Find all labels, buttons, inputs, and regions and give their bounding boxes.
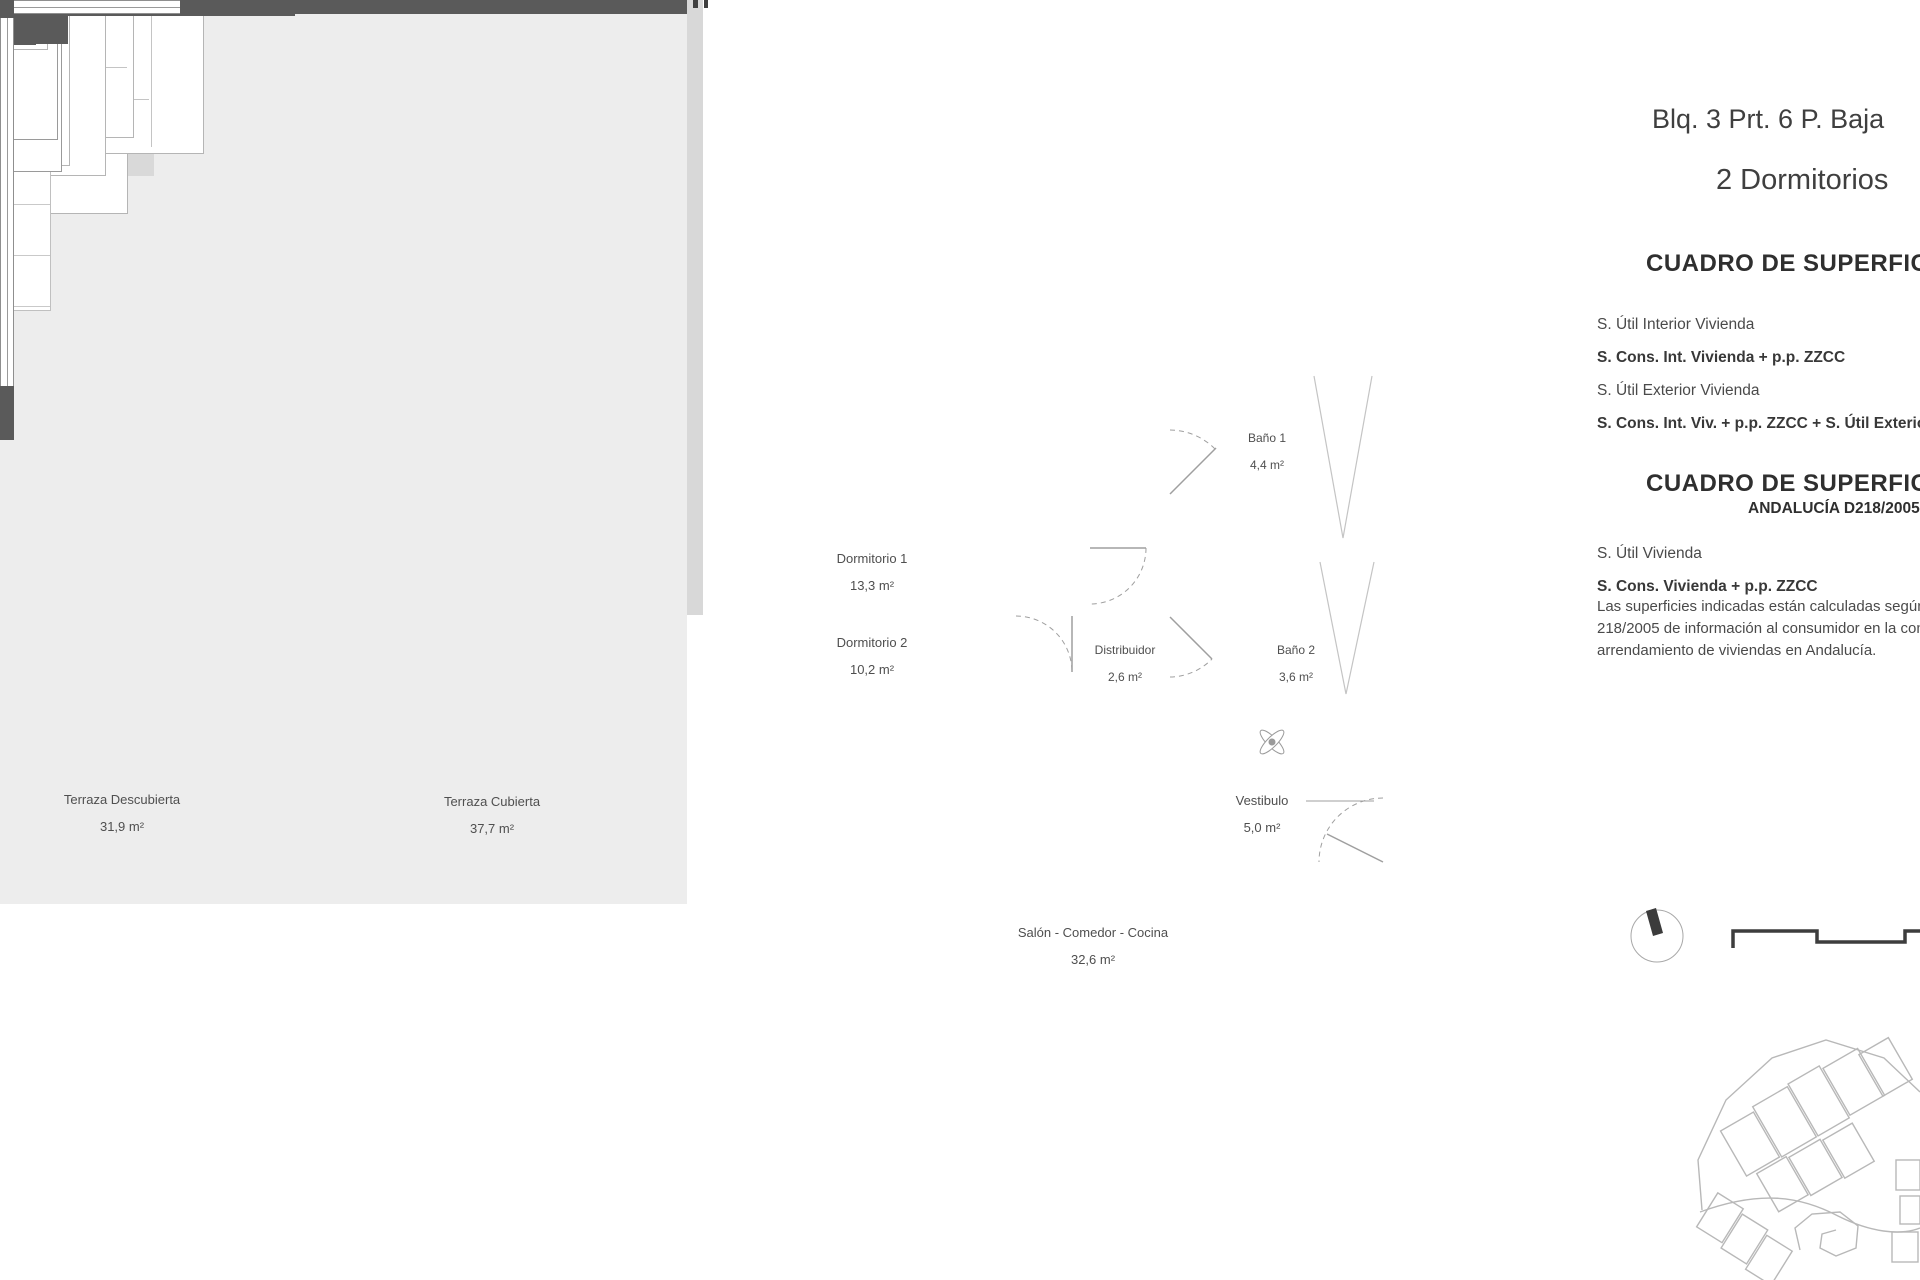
surface-table2-row: S. Cons. Vivienda + p.p. ZZCC [1597,578,1818,596]
plan-title: Blq. 3 Prt. 6 P. Baja [1652,104,1884,135]
room-area: 13,3 m² [837,572,908,599]
room-area: 32,6 m² [1018,946,1168,973]
floor-plan-sheet: Dormitorio 1 13,3 m² Dormitorio 2 10,2 m… [0,0,1920,1280]
room-name: Dormitorio 1 [837,545,908,572]
room-area: 2,6 m² [1095,664,1156,691]
surface-table1-row: S. Cons. Int. Viv. + p.p. ZZCC + S. Útil… [1597,415,1920,433]
room-label-bano1: Baño 1 4,4 m² [1248,425,1286,479]
room-area: 31,9 m² [64,813,180,840]
legal-note-line: arrendamiento de viviendas en Andalucía. [1597,642,1876,659]
room-area: 4,4 m² [1248,452,1286,479]
door-entrance [1306,798,1383,862]
room-name: Vestibulo [1236,787,1289,814]
door-bathroom1 [1170,430,1216,494]
room-area: 10,2 m² [837,656,908,683]
site-plan-map [1691,1029,1920,1280]
door-bathroom2 [1170,617,1212,677]
room-label-dormitorio2: Dormitorio 2 10,2 m² [837,629,908,683]
surface-table1-row: S. Útil Interior Vivienda [1597,316,1754,334]
room-label-vestibulo: Vestibulo 5,0 m² [1236,787,1289,841]
plan-overlay [0,0,1920,1280]
room-name: Terraza Cubierta [444,788,540,815]
surface-table1-heading: CUADRO DE SUPERFICIES [1646,250,1920,278]
room-name: Salón - Comedor - Cocina [1018,919,1168,946]
door-dormitorio2 [1016,616,1072,672]
extractor-fan-icon [1257,727,1287,757]
surface-table2-heading: CUADRO DE SUPERFICIES [1646,470,1920,498]
room-name: Distribuidor [1095,637,1156,664]
legal-note-line: Las superficies indicadas están calculad… [1597,598,1920,615]
room-name: Baño 1 [1248,425,1286,452]
room-name: Dormitorio 2 [837,629,908,656]
north-arrow-icon [1631,908,1683,962]
surface-table2-subheading: ANDALUCÍA D218/2005 [1748,500,1920,518]
surface-table1-row: S. Útil Exterior Vivienda [1597,382,1760,400]
room-name: Baño 2 [1277,637,1315,664]
room-area: 37,7 m² [444,815,540,842]
room-area: 3,6 m² [1277,664,1315,691]
shower-glass-marks [1314,376,1374,694]
room-label-distribuidor: Distribuidor 2,6 m² [1095,637,1156,691]
legal-note-line: 218/2005 de información al consumidor en… [1597,620,1920,637]
room-name: Terraza Descubierta [64,786,180,813]
plan-subtitle: 2 Dormitorios [1716,164,1888,197]
surface-table1-row: S. Cons. Int. Vivienda + p.p. ZZCC [1597,349,1845,367]
room-label-salon: Salón - Comedor - Cocina 32,6 m² [1018,919,1168,973]
surface-table2-row: S. Útil Vivienda [1597,545,1702,563]
room-area: 5,0 m² [1236,814,1289,841]
scale-bar [1733,931,1920,948]
room-label-dormitorio1: Dormitorio 1 13,3 m² [837,545,908,599]
room-label-terraza-cubierta: Terraza Cubierta 37,7 m² [444,788,540,842]
room-label-terraza-descubierta: Terraza Descubierta 31,9 m² [64,786,180,840]
door-dormitorio1 [1090,548,1146,604]
room-label-bano2: Baño 2 3,6 m² [1277,637,1315,691]
